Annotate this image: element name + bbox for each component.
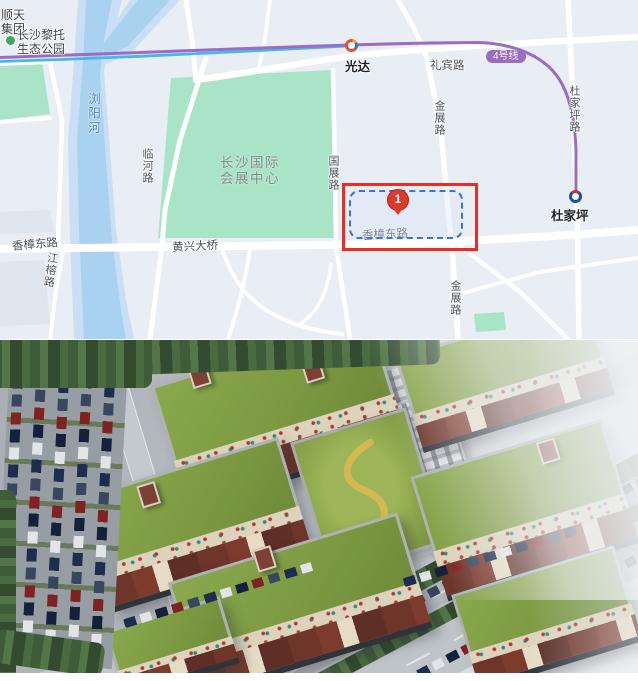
station-guangda-label[interactable]: 光达 — [345, 56, 370, 75]
road-label-jinzhan-south: 金展路 — [447, 280, 463, 316]
aerial-render-photo — [0, 340, 638, 673]
parking-lot — [0, 355, 128, 669]
partial-poi-line1: 顺天 — [1, 8, 25, 22]
road-label-huangxing-bridge: 黄兴大桥 — [172, 237, 219, 255]
listing-screenshot: 顺天集团 长沙黎托生态公园 浏阳河 长沙国际会展中心 光达 礼宾路 4号线 杜家… — [0, 0, 638, 681]
park-area-west — [0, 62, 50, 120]
map-marker-1[interactable]: 1 — [387, 189, 409, 211]
green-patch-southeast — [474, 312, 506, 332]
map-base — [0, 0, 638, 339]
metro-station-dujiaping-icon[interactable] — [569, 190, 582, 203]
bottom-margin — [0, 673, 638, 681]
parked-car-row — [68, 363, 93, 655]
exhibition-center-label[interactable]: 长沙国际会展中心 — [198, 155, 302, 187]
park-poi-line2: 生态公园 — [17, 42, 65, 56]
road-label-linhe: 临河路 — [139, 148, 155, 184]
road-label-libin: 礼宾路 — [430, 57, 465, 73]
park-poi-line1: 长沙黎托 — [17, 28, 65, 42]
metro-station-guangda-icon[interactable] — [345, 39, 358, 52]
road-label-jinzhan-north: 金展路 — [431, 100, 447, 136]
parked-car-row — [44, 368, 69, 660]
parked-car-row — [22, 359, 47, 651]
parked-car-row — [90, 372, 115, 664]
metro-line4-badge: 4号线 — [486, 50, 526, 63]
park-poi-label[interactable]: 长沙黎托生态公园 — [17, 28, 65, 56]
tree-belt-top-left — [0, 340, 152, 388]
exhibition-line2: 会展中心 — [220, 171, 280, 186]
river-label: 浏阳河 — [84, 92, 103, 136]
road-label-guozhan: 国展路 — [325, 155, 341, 191]
exhibition-center-area — [158, 70, 334, 238]
station-dujiaping-label[interactable]: 杜家坪 — [551, 205, 589, 224]
map-panel[interactable]: 顺天集团 长沙黎托生态公园 浏阳河 长沙国际会展中心 光达 礼宾路 4号线 杜家… — [0, 0, 638, 339]
marker-number: 1 — [395, 192, 402, 206]
park-poi-icon — [5, 35, 16, 46]
exhibition-line1: 长沙国际 — [220, 155, 280, 170]
road-label-dujiaping: 杜家坪路 — [566, 85, 582, 133]
